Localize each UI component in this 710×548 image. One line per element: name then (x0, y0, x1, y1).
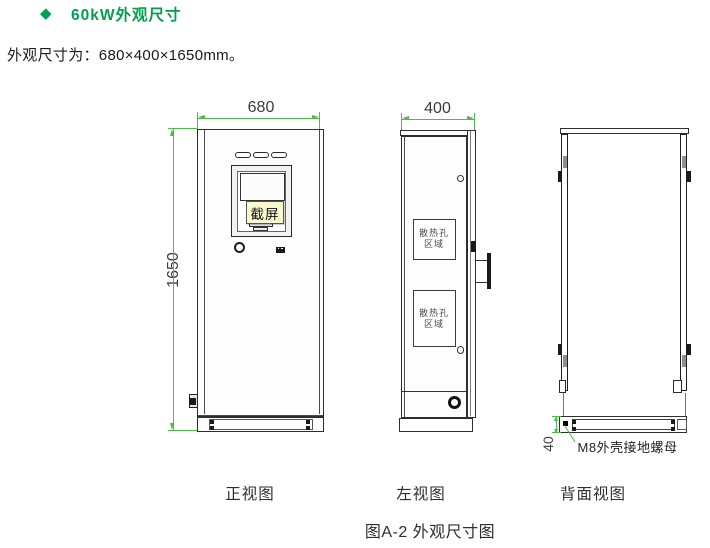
dim-arrow-down-icon (170, 423, 174, 430)
front-height-ext-line (168, 128, 198, 129)
indicator-light-icon (253, 152, 270, 158)
front-door-bottom-line (198, 415, 323, 416)
front-width-dim-line (197, 118, 319, 119)
back-panel-edge-line (563, 393, 564, 417)
rail-hinge-mark (471, 241, 476, 252)
side-depth-ext-line (474, 113, 475, 130)
usb-port-pin (281, 248, 283, 250)
front-height-ext-line (168, 430, 198, 431)
manual-page: ◆ 60kW外观尺寸 外观尺寸为：680×400×1650mm。 680 165… (0, 0, 710, 548)
front-width-dim-label: 680 (232, 99, 290, 117)
foot-bolt-mark (572, 420, 576, 424)
base-height-dim-label: 40 (540, 432, 554, 456)
vent-area-box: 散热孔区域 (413, 290, 456, 347)
usb-port-pin (278, 248, 280, 250)
side-rear-rail (467, 130, 476, 419)
front-view-caption: 正视图 (224, 482, 276, 504)
front-width-ext-line (197, 112, 198, 130)
front-door-right-edge-line (319, 130, 320, 414)
front-base-inner (209, 419, 313, 430)
front-door-left-edge-line (204, 130, 205, 414)
back-top-cap (560, 128, 689, 134)
vent-area-label: 散热孔区域 (419, 308, 449, 330)
side-door-edge-line (404, 136, 405, 417)
hinge-tab-icon (687, 171, 691, 182)
rail-foot (673, 380, 682, 393)
hinge-tab-icon (558, 171, 562, 182)
dimension-summary-text: 外观尺寸为：680×400×1650mm。 (7, 44, 244, 65)
ground-nut-label: M8外壳接地螺母 (578, 437, 678, 456)
back-base-inner (572, 419, 676, 431)
dim-arrow-left-icon (198, 115, 205, 119)
vent-area-label: 散热孔区域 (419, 228, 449, 250)
section-title: 60kW外观尺寸 (71, 3, 182, 25)
foot-bolt-mark (671, 420, 675, 424)
left-view-caption: 左视图 (395, 482, 447, 504)
dim-arrow-up-icon (170, 129, 174, 136)
panel-slot-base (253, 227, 268, 231)
foot-bolt-mark (306, 426, 310, 430)
rail-hinge-mark (563, 355, 567, 367)
indicator-light-icon (235, 152, 252, 158)
dim-arrow-left-icon (402, 116, 409, 120)
base-height-ext-line (552, 432, 561, 433)
rail-hinge-mark (682, 355, 686, 367)
screw-icon (457, 346, 465, 354)
side-depth-dim-label: 400 (410, 100, 465, 118)
side-latch-grip (190, 398, 196, 405)
foot-bolt-mark (572, 427, 576, 431)
cable-gland-icon (448, 396, 461, 409)
front-height-dim-line (173, 129, 174, 430)
bracket-flange-line (476, 282, 488, 283)
bracket-flange-line (476, 260, 488, 261)
indicator-light-icon (271, 152, 288, 158)
front-width-ext-line (319, 112, 320, 130)
vent-area-box: 散热孔区域 (413, 219, 456, 260)
bracket-bar (487, 253, 492, 290)
base-height-ext-line (552, 416, 561, 417)
side-rear-rail-line (470, 131, 471, 416)
back-base-end-box (677, 419, 687, 431)
foot-bolt-mark (210, 426, 214, 430)
screenshot-tooltip[interactable]: 截屏 (246, 201, 284, 224)
back-view-caption: 背面视图 (559, 482, 627, 504)
side-depth-ext-line (401, 113, 402, 130)
back-left-rail (561, 134, 568, 391)
hinge-tab-icon (558, 344, 562, 355)
door-lock-icon (234, 242, 246, 254)
side-depth-dim-line (401, 119, 474, 120)
foot-bolt-mark (671, 427, 675, 431)
side-bottom-panel-line (401, 391, 467, 392)
side-base-plinth (399, 418, 473, 432)
foot-bolt-mark (306, 420, 310, 424)
hinge-tab-icon (687, 344, 691, 355)
rail-hinge-mark (682, 156, 686, 168)
diamond-bullet-icon: ◆ (40, 4, 52, 22)
rail-foot (559, 380, 566, 393)
rail-hinge-mark (563, 156, 567, 168)
foot-bolt-mark (210, 420, 214, 424)
back-right-rail (680, 134, 687, 391)
screw-icon (457, 175, 465, 183)
display-screen (240, 173, 285, 201)
figure-caption: 图A-2 外观尺寸图 (352, 518, 508, 542)
back-panel-edge-line (685, 393, 686, 417)
